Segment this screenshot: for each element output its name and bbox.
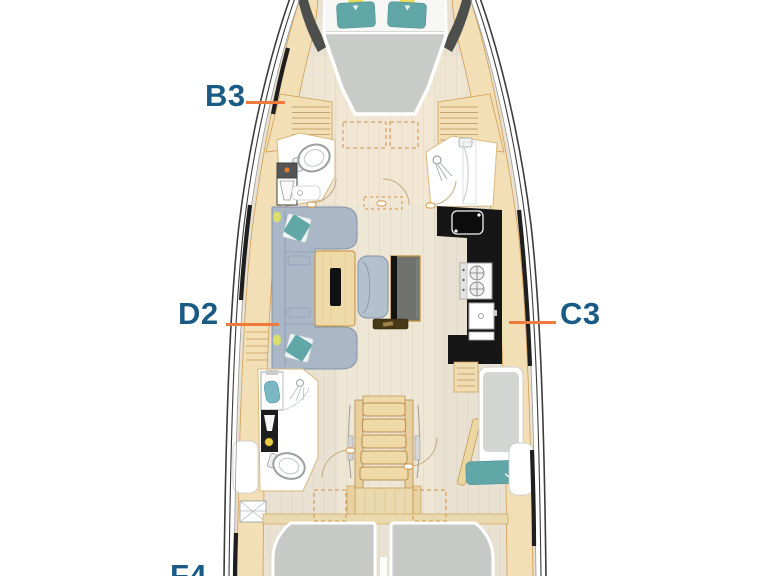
shower-tray xyxy=(292,186,320,200)
companionway-stairs xyxy=(347,396,421,516)
aft-bed-starboard xyxy=(391,523,493,576)
galley-sink-icon xyxy=(452,211,483,234)
yacht-floor-plan: B3 D2 C3 F4 xyxy=(0,0,768,576)
berth-mattress xyxy=(483,372,519,452)
cushion-accent-yellow xyxy=(273,212,281,223)
stair-landing xyxy=(355,488,413,516)
aft-head-cabinet xyxy=(261,410,278,452)
tv-panel xyxy=(391,256,420,321)
label-b3: B3 xyxy=(205,80,246,111)
louver-locker xyxy=(240,501,266,522)
label-c3: C3 xyxy=(560,298,601,329)
media-console xyxy=(373,319,408,329)
label-d2-leader xyxy=(226,323,279,326)
forward-shower xyxy=(426,136,497,207)
label-f4: F4 xyxy=(170,560,207,576)
aft-vanity-sink xyxy=(261,370,283,410)
cushion-accent-yellow xyxy=(273,335,281,346)
light-icon xyxy=(265,438,273,446)
salon-chair xyxy=(358,256,388,318)
salon-table xyxy=(315,251,355,326)
shelf xyxy=(459,138,472,147)
label-d2: D2 xyxy=(178,298,219,329)
stair-treads xyxy=(360,403,408,480)
bed-divider xyxy=(380,557,387,576)
pillow-starboard xyxy=(387,2,426,29)
aft-bed-port xyxy=(273,523,375,576)
table-centerpiece xyxy=(330,268,341,306)
hull-recess-starboard xyxy=(509,443,533,495)
floor-plan-drawing xyxy=(0,0,768,576)
label-c3-leader xyxy=(509,321,556,324)
stove-icon xyxy=(460,263,492,299)
pillow-port xyxy=(336,2,375,29)
label-b3-leader xyxy=(246,101,285,104)
galley-appliance xyxy=(469,303,497,340)
louver-shelf-aft xyxy=(454,362,478,392)
